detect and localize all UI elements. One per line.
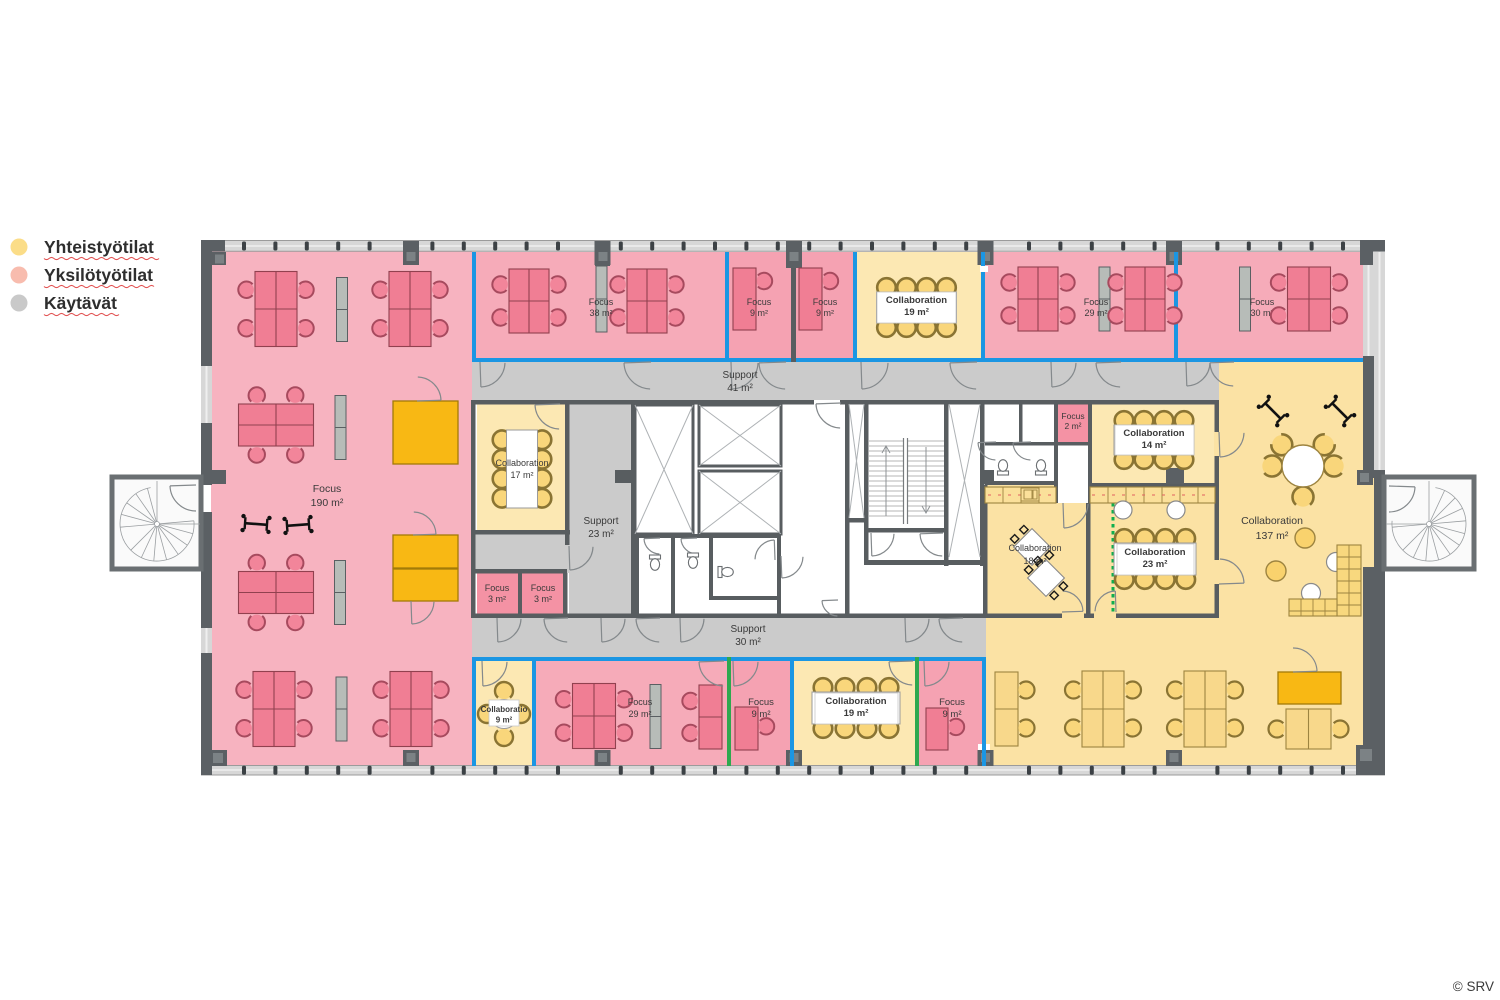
svg-text:9 m²: 9 m² [816, 308, 834, 318]
svg-text:Yhteistyötilat: Yhteistyötilat [44, 237, 154, 257]
svg-text:137 m²: 137 m² [1256, 530, 1289, 542]
svg-text:Focus: Focus [628, 697, 653, 707]
svg-text:Focus: Focus [531, 583, 556, 593]
svg-text:3 m²: 3 m² [534, 594, 552, 604]
svg-text:19 m²: 19 m² [844, 708, 869, 719]
svg-text:Support: Support [722, 370, 757, 381]
svg-text:Collaboration: Collaboration [1123, 428, 1184, 439]
svg-text:Focus: Focus [939, 697, 965, 708]
svg-text:9 m²: 9 m² [752, 709, 771, 720]
svg-text:Focus: Focus [813, 297, 838, 307]
svg-text:Focus: Focus [748, 697, 774, 708]
svg-text:23 m²: 23 m² [1143, 559, 1168, 570]
svg-text:18 m²: 18 m² [1023, 556, 1046, 566]
svg-text:Focus: Focus [485, 583, 510, 593]
svg-text:41 m²: 41 m² [727, 383, 753, 394]
svg-text:Collaboration: Collaboration [1124, 547, 1185, 558]
svg-text:23 m²: 23 m² [588, 529, 614, 540]
svg-text:© SRV: © SRV [1453, 979, 1494, 994]
svg-text:Collaboration: Collaboration [495, 458, 548, 468]
svg-text:Yksilötyötilat: Yksilötyötilat [44, 265, 153, 285]
svg-text:3 m²: 3 m² [488, 594, 506, 604]
svg-text:Focus: Focus [589, 297, 614, 307]
svg-text:Focus: Focus [313, 483, 342, 495]
svg-text:Focus: Focus [1084, 297, 1109, 307]
svg-text:Collaboration: Collaboration [1008, 543, 1061, 553]
svg-text:30 m²: 30 m² [735, 637, 761, 648]
svg-text:9 m²: 9 m² [750, 308, 768, 318]
svg-text:19 m²: 19 m² [904, 307, 929, 318]
svg-text:38 m²: 38 m² [589, 308, 612, 318]
svg-text:Support: Support [730, 624, 765, 635]
svg-text:29 m²: 29 m² [1084, 308, 1107, 318]
svg-text:2 m²: 2 m² [1065, 421, 1082, 431]
svg-text:9 m²: 9 m² [496, 716, 513, 725]
svg-text:Collaboration: Collaboration [1241, 515, 1303, 527]
svg-text:Focus: Focus [1250, 297, 1275, 307]
svg-text:17 m²: 17 m² [510, 470, 533, 480]
svg-text:9 m²: 9 m² [943, 709, 962, 720]
svg-text:14 m²: 14 m² [1142, 440, 1167, 451]
svg-text:29 m²: 29 m² [628, 709, 651, 719]
svg-text:190 m²: 190 m² [311, 497, 344, 509]
svg-text:Collaboration: Collaboration [886, 295, 947, 306]
svg-text:Focus: Focus [1061, 411, 1084, 421]
svg-text:Collaboration: Collaboration [825, 696, 886, 707]
svg-text:Support: Support [583, 516, 618, 527]
svg-text:Focus: Focus [747, 297, 772, 307]
svg-text:Collaboratio: Collaboratio [481, 705, 528, 714]
svg-text:Käytävät: Käytävät [44, 293, 117, 313]
